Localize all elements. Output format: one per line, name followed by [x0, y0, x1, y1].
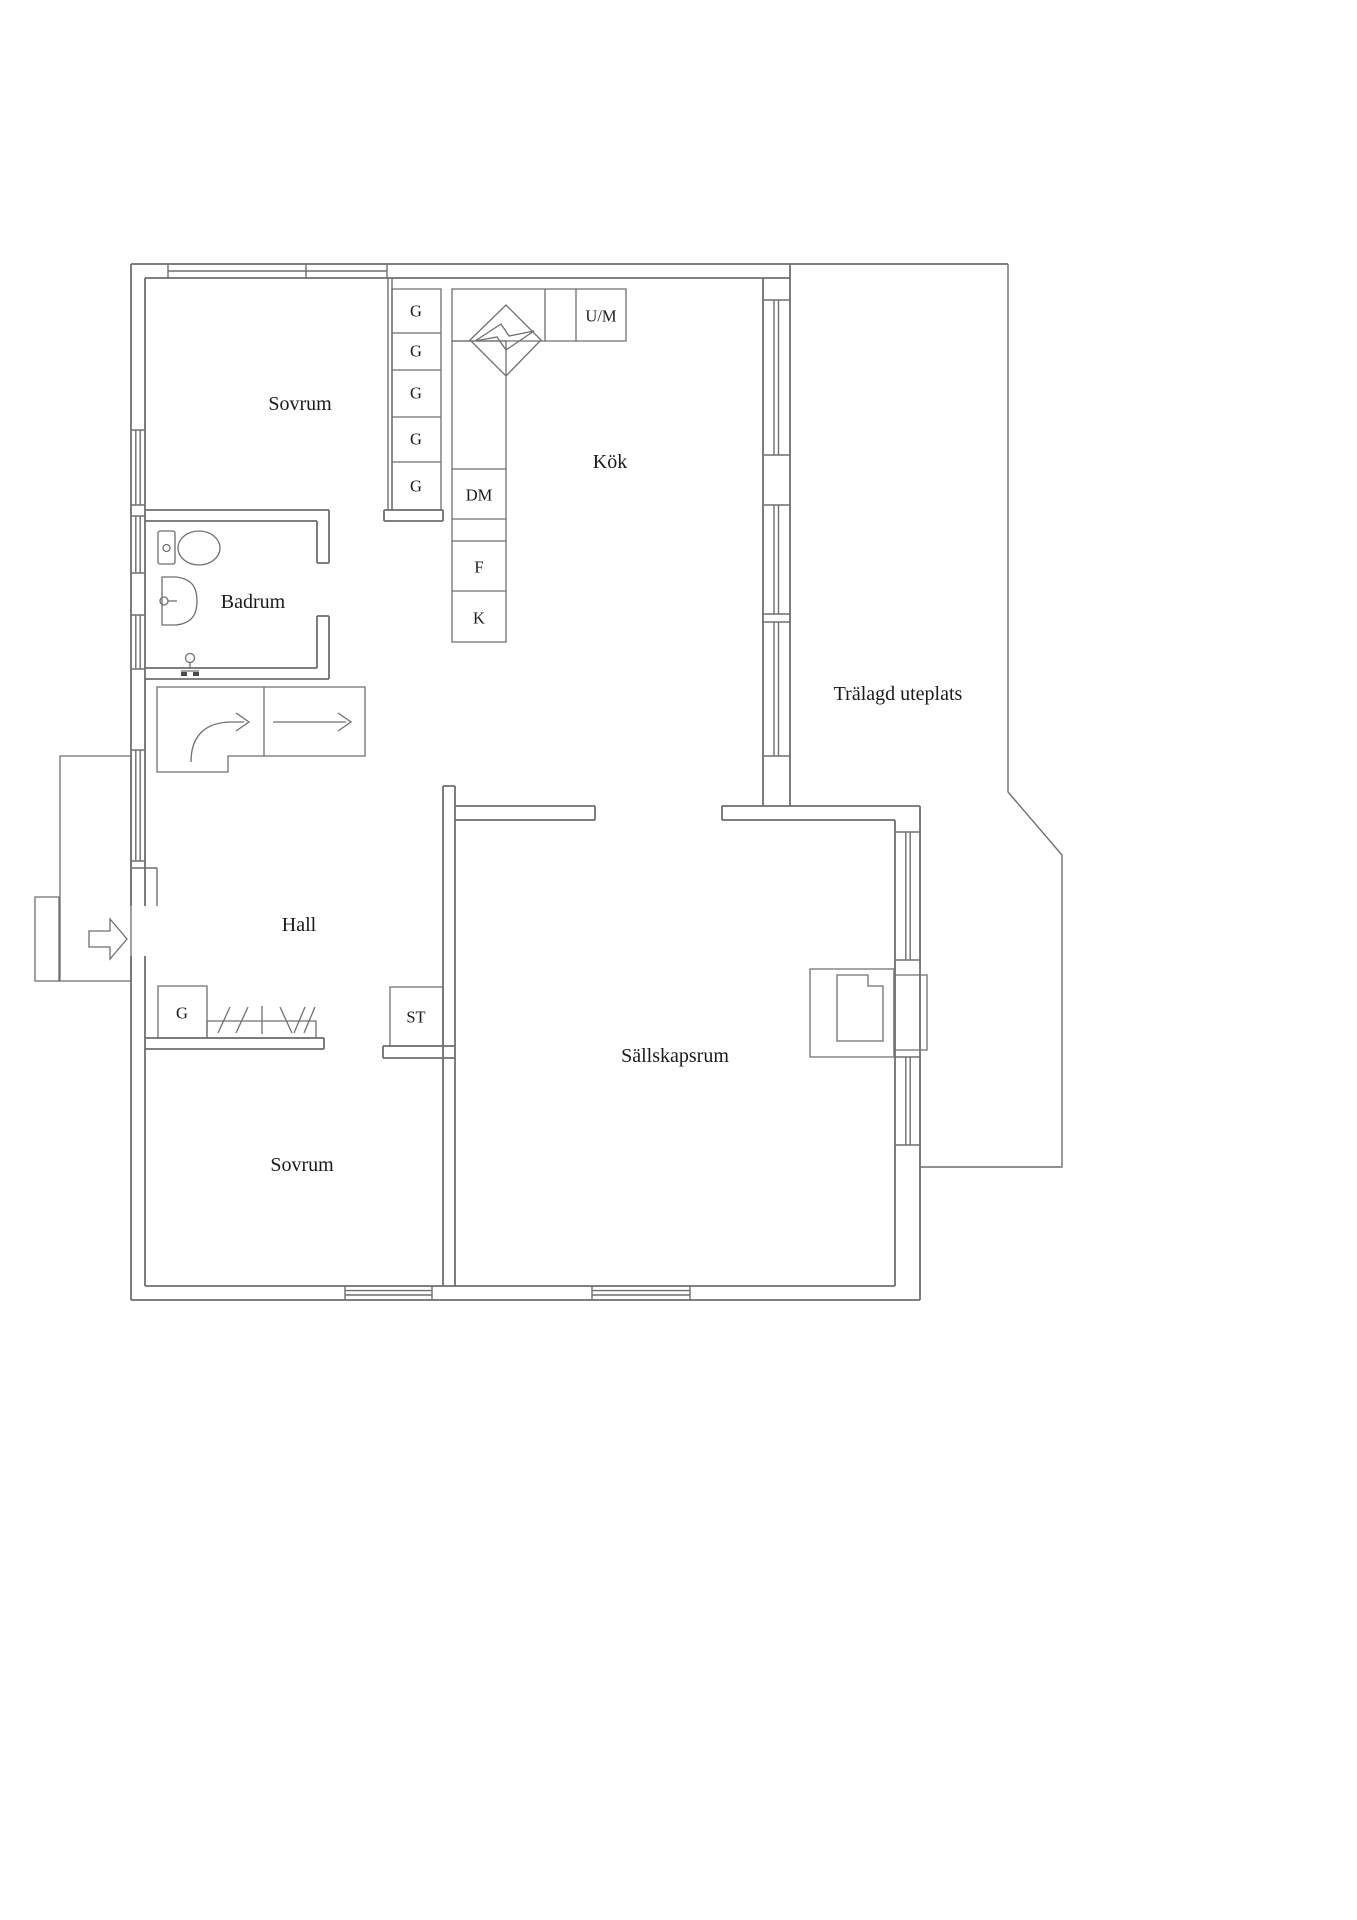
room-label-bathroom: Badrum [221, 591, 286, 613]
window-top [168, 264, 387, 278]
cabinet-label: G [410, 384, 422, 403]
cabinet-label: G [410, 342, 422, 361]
freezer-label: F [474, 558, 483, 577]
room-label-hall: Hall [282, 914, 317, 936]
staircase [157, 687, 365, 772]
cleaning-closet: ST [390, 987, 443, 1046]
room-label-bedroom-bottom: Sovrum [270, 1154, 334, 1176]
hall-wardrobe: G [158, 986, 316, 1038]
exterior-walls [131, 264, 1008, 1300]
stair-straight-arrow-icon [273, 713, 351, 731]
windows-right [895, 832, 920, 1145]
kitchen-cabinet-column: G G G G G [392, 289, 441, 510]
room-labels: Sovrum Kök Badrum Hall Sällskapsrum Sovr… [221, 393, 963, 1176]
fridge-label: K [473, 609, 485, 628]
floor-plan-drawing: G G G G G U/M DM F K [0, 0, 1357, 1920]
cabinet-label: G [410, 430, 422, 449]
patio-boundary [920, 264, 1062, 1167]
fireplace-icon [810, 969, 927, 1057]
wardrobe-label: G [176, 1004, 188, 1023]
stair-curved-arrow-icon [191, 713, 249, 762]
entrance-arrow-icon [89, 919, 127, 959]
windows-kitchen-wall [763, 300, 790, 756]
cleaning-closet-label: ST [406, 1008, 425, 1027]
floor-drain-icon [181, 654, 199, 677]
interior-walls [145, 278, 595, 1286]
room-label-patio: Trälagd uteplats [834, 683, 963, 705]
hanger-marks-icon [218, 1006, 315, 1034]
floor-plan-page: G G G G G U/M DM F K [0, 0, 1357, 1920]
toilet-icon [158, 531, 220, 565]
dishwasher-label: DM [466, 486, 493, 505]
cabinet-label: G [410, 477, 422, 496]
room-label-kitchen: Kök [593, 451, 627, 473]
central-wall [443, 786, 595, 1286]
stove-bolt-icon [475, 324, 534, 350]
windows-left [131, 430, 145, 861]
sink-icon [160, 577, 197, 625]
windows-bottom [345, 1286, 690, 1300]
entry-porch [35, 756, 131, 981]
room-label-living-room: Sällskapsrum [621, 1045, 729, 1067]
cabinet-label: G [410, 302, 422, 321]
oven-microwave-label: U/M [585, 307, 617, 326]
bathroom-fixtures [158, 531, 220, 676]
room-label-bedroom-top: Sovrum [268, 393, 332, 415]
kitchen-patio-wall [763, 264, 790, 806]
